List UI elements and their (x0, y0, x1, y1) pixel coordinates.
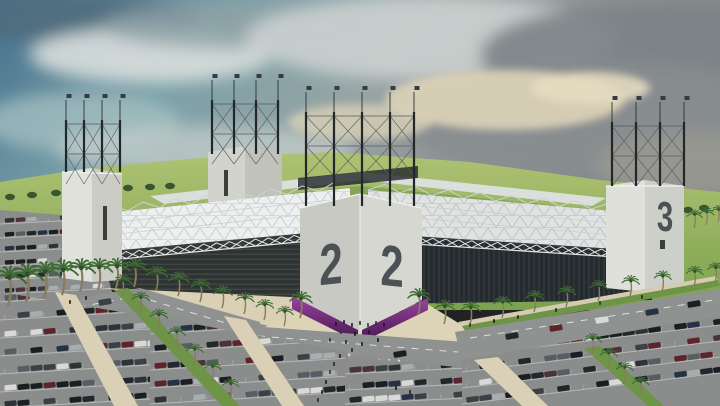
parked-car (27, 259, 37, 264)
flag (335, 86, 340, 90)
parked-car (27, 217, 37, 222)
person (85, 296, 87, 300)
parked-car (49, 243, 59, 248)
parked-car (5, 246, 15, 251)
flag (415, 86, 420, 90)
parked-car (5, 218, 15, 223)
parked-car (93, 283, 103, 288)
flag (121, 94, 126, 98)
person (354, 332, 356, 336)
flag (637, 96, 642, 100)
person (339, 354, 341, 358)
parked-car (5, 260, 15, 265)
person (641, 295, 643, 299)
tree (145, 184, 155, 190)
flag (103, 94, 108, 98)
person (351, 323, 353, 327)
parked-car (16, 287, 26, 292)
person (361, 342, 363, 346)
parked-car (49, 229, 59, 234)
tower-south-number-left: 2 (319, 230, 342, 298)
parked-car (49, 285, 59, 290)
parked-car (16, 217, 26, 222)
flag (613, 96, 618, 100)
flag (661, 96, 666, 100)
flag (307, 86, 312, 90)
person (325, 380, 327, 384)
person (351, 348, 353, 352)
person (493, 319, 495, 323)
flag (279, 74, 284, 78)
tower-east-number: 3 (657, 192, 673, 241)
tree (165, 183, 175, 189)
person (409, 390, 411, 394)
person (317, 398, 319, 402)
person (69, 300, 71, 304)
person (335, 322, 337, 326)
person (599, 301, 601, 305)
person (377, 338, 379, 342)
person (343, 320, 345, 324)
parked-car (38, 244, 48, 249)
person (469, 323, 471, 327)
person (340, 330, 342, 334)
parked-car (5, 232, 15, 237)
person (359, 321, 361, 325)
tree (123, 185, 133, 191)
flag (67, 94, 72, 98)
parked-car (16, 259, 26, 264)
flag (235, 74, 240, 78)
flag (85, 94, 90, 98)
person (321, 390, 323, 394)
tree (27, 192, 37, 198)
flag (257, 74, 262, 78)
parked-car (38, 230, 48, 235)
tree (51, 190, 61, 196)
parked-car (27, 245, 37, 250)
parked-car (71, 284, 81, 289)
person (517, 315, 519, 319)
person (375, 321, 377, 325)
tower-east: 3 (606, 180, 684, 292)
tree (5, 194, 15, 200)
flag (363, 86, 368, 90)
person (367, 323, 369, 327)
tower-south-number-right: 2 (380, 232, 403, 300)
parked-car (16, 231, 26, 236)
flag (213, 74, 218, 78)
flag (391, 86, 396, 90)
person (368, 330, 370, 334)
person (555, 308, 557, 312)
person (345, 340, 347, 344)
person (395, 386, 397, 390)
person (383, 323, 385, 327)
person (333, 362, 335, 366)
person (329, 370, 331, 374)
stadium-rendering: 3 2 2 (0, 0, 720, 406)
parked-car (27, 231, 37, 236)
person (329, 338, 331, 342)
parked-car (16, 245, 26, 250)
flag (685, 96, 690, 100)
